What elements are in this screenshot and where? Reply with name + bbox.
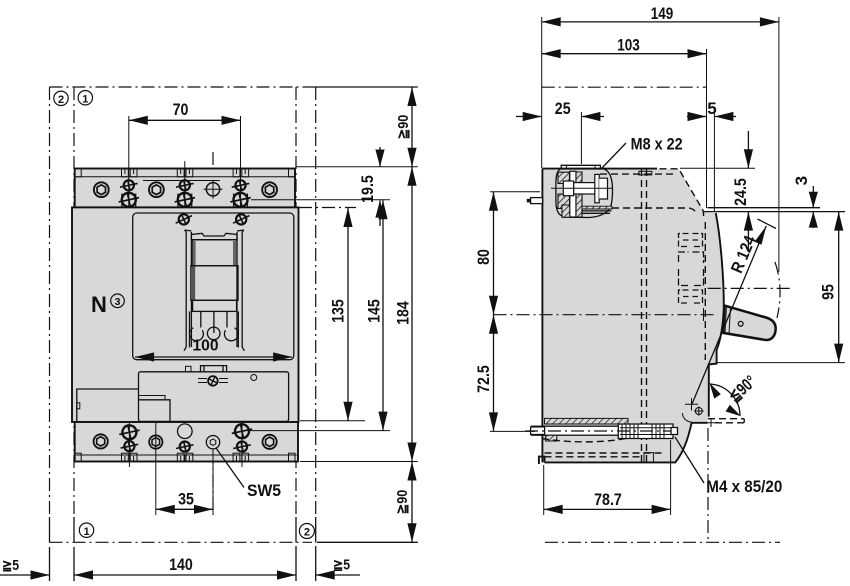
svg-text:72.5: 72.5 [474, 365, 493, 393]
svg-text:78.7: 78.7 [594, 490, 622, 509]
svg-text:1: 1 [83, 526, 89, 538]
svg-text:5: 5 [707, 99, 716, 118]
svg-text:2: 2 [304, 527, 310, 539]
svg-text:70: 70 [173, 100, 189, 119]
svg-text:19.5: 19.5 [358, 175, 377, 203]
svg-text:≧5: ≧5 [2, 558, 19, 574]
svg-text:145: 145 [365, 299, 384, 323]
svg-text:100: 100 [193, 338, 219, 355]
svg-text:2: 2 [58, 94, 64, 106]
svg-text:24.5: 24.5 [731, 178, 750, 206]
svg-text:149: 149 [651, 4, 674, 23]
svg-text:SW5: SW5 [247, 481, 281, 500]
svg-text:25: 25 [555, 99, 571, 118]
svg-text:80: 80 [474, 249, 493, 265]
svg-text:95: 95 [819, 284, 838, 300]
svg-text:1: 1 [82, 93, 88, 105]
svg-text:M8 x 22: M8 x 22 [631, 135, 683, 154]
svg-text:184: 184 [394, 301, 413, 325]
svg-text:≧90: ≧90 [395, 115, 412, 140]
svg-text:135: 135 [329, 299, 348, 323]
svg-text:3: 3 [115, 296, 121, 308]
svg-text:N: N [91, 292, 107, 317]
svg-text:140: 140 [169, 555, 193, 574]
svg-text:≧5: ≧5 [333, 558, 350, 574]
svg-text:≧90: ≧90 [394, 490, 411, 515]
svg-text:M4 x 85/20: M4 x 85/20 [706, 477, 782, 496]
svg-text:35: 35 [178, 490, 194, 509]
svg-text:103: 103 [617, 36, 640, 55]
svg-text:3: 3 [792, 176, 811, 185]
